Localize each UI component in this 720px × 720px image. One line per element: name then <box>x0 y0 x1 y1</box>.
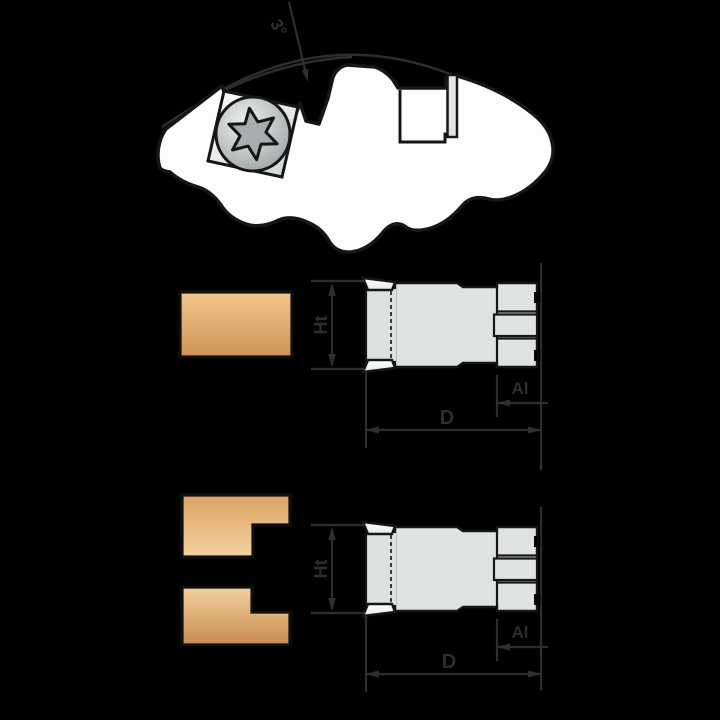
ht-label: Ht <box>311 316 331 335</box>
stepped-profile-section: Ht Al D <box>182 495 548 692</box>
angle-arrowhead <box>302 69 308 82</box>
shear-angle-label: 3° <box>266 16 291 39</box>
diagram-canvas: 3° Ht Al D Ht Al D <box>0 0 720 720</box>
wood-profile-straight <box>180 292 292 357</box>
d-label: D <box>440 407 454 429</box>
d-label: D <box>442 651 456 673</box>
straight-profile-section: Ht Al D <box>180 263 548 470</box>
al-label: Al <box>512 623 529 642</box>
wood-profile-upper <box>182 495 290 557</box>
cutter-side-view <box>363 522 541 616</box>
wood-profile-lower <box>182 587 290 645</box>
al-label: Al <box>512 379 529 398</box>
cutterhead-diagram-svg: 3° Ht Al D Ht Al D <box>0 0 720 720</box>
head-top-view: 3° <box>158 2 553 252</box>
counter-knife <box>448 75 458 137</box>
ht-label: Ht <box>311 560 331 579</box>
cutter-side-view <box>363 278 541 372</box>
